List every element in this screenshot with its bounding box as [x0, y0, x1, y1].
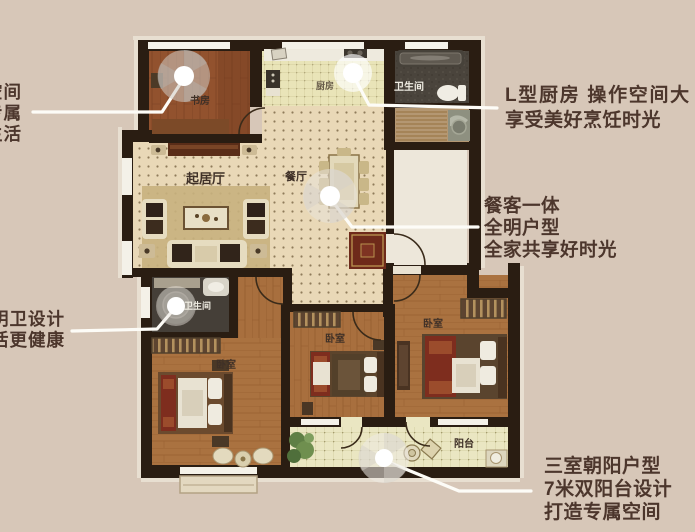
svg-text:书房空间: 书房空间: [0, 82, 22, 102]
svg-text:全家共享好时光: 全家共享好时光: [483, 239, 617, 260]
svg-text:三室朝阳户型: 三室朝阳户型: [544, 454, 661, 477]
svg-text:厨房: 厨房: [316, 80, 334, 91]
svg-text:活更健康: 活更健康: [0, 330, 65, 350]
svg-text:明卫设计: 明卫设计: [0, 309, 65, 329]
svg-text:餐客一体: 餐客一体: [483, 195, 560, 216]
svg-text:卫生间: 卫生间: [394, 80, 424, 93]
svg-text:卧室: 卧室: [216, 358, 236, 371]
svg-text:7米双阳台设计: 7米双阳台设计: [544, 477, 672, 500]
svg-text:静心生活: 静心生活: [0, 124, 22, 144]
svg-text:餐厅: 餐厅: [284, 169, 307, 183]
svg-text:卧室: 卧室: [325, 332, 345, 345]
svg-text:卧室: 卧室: [423, 317, 443, 330]
svg-text:卫生间: 卫生间: [184, 300, 211, 311]
svg-text:享受美好烹饪时光: 享受美好烹饪时光: [505, 108, 661, 131]
svg-text:起居厅: 起居厅: [185, 171, 225, 186]
svg-text:L型厨房 操作空间大: L型厨房 操作空间大: [505, 83, 691, 106]
svg-text:独立专属: 独立专属: [0, 103, 22, 123]
svg-text:书房: 书房: [190, 94, 210, 107]
svg-text:打造专属空间: 打造专属空间: [544, 500, 661, 523]
svg-text:阳台: 阳台: [454, 437, 474, 450]
svg-text:全明户型: 全明户型: [483, 217, 560, 238]
